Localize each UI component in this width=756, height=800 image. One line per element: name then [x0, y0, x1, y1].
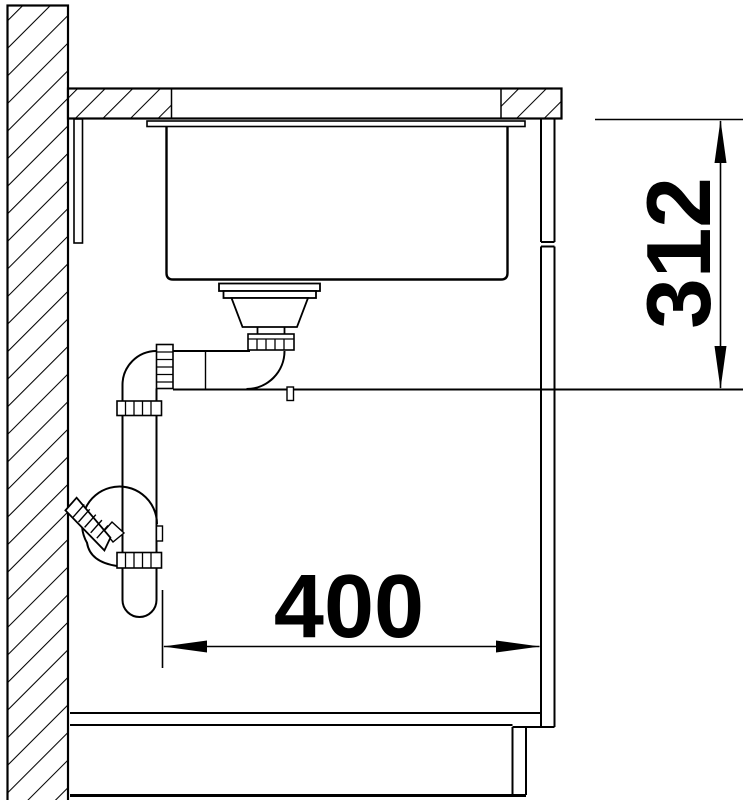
pipe-clip — [157, 526, 163, 541]
strainer-locking-nut — [248, 334, 294, 350]
pipe-clip — [287, 387, 294, 401]
technical-drawing-sink-section: 312 400 — [0, 0, 756, 800]
sink-flange — [147, 121, 525, 127]
elbow-union-nut — [157, 345, 174, 389]
sink-bowl — [147, 121, 525, 280]
drain-elbow-pipe — [123, 345, 294, 401]
dimension-312: 312 — [595, 120, 743, 390]
dimension-400: 400 — [163, 557, 541, 668]
strainer-waste-assembly — [219, 284, 320, 351]
cabinet-side-panel — [541, 119, 555, 728]
countertop-section — [68, 89, 562, 119]
trap-union-nut-lower — [117, 553, 162, 569]
dimension-value-vertical: 312 — [629, 177, 730, 329]
arrow-right-icon — [496, 641, 540, 653]
dimension-value-horizontal: 400 — [274, 557, 424, 657]
wall-section-hatched — [8, 6, 69, 800]
arrow-up-icon — [715, 120, 727, 163]
arrow-left-icon — [163, 641, 207, 653]
arrow-down-icon — [715, 346, 727, 389]
siphon-trap — [65, 385, 162, 617]
plinth — [513, 727, 527, 795]
drawing-canvas: 312 400 — [0, 0, 756, 800]
cabinet-bottom-panel — [70, 713, 555, 727]
trap-cup-bottom — [123, 600, 157, 617]
wall-batten — [74, 119, 83, 243]
trap-union-nut-upper — [117, 401, 162, 416]
